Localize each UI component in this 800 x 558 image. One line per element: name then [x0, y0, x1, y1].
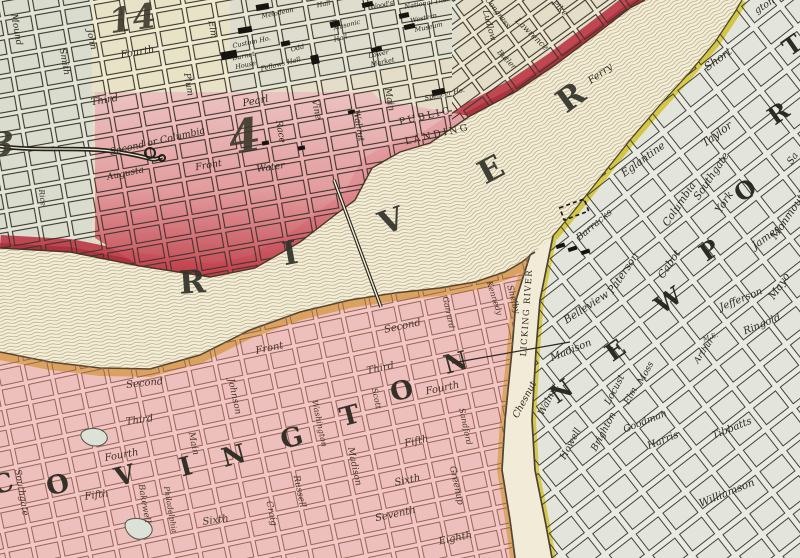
- r-label: R: [178, 262, 208, 302]
- antique-map-cincinnati-covington-newport: 1443MoundSmithJohnFourthThirdPlumElmRace…: [0, 0, 800, 558]
- 14-label: 14: [106, 0, 158, 42]
- map-canvas: 1443MoundSmithJohnFourthThirdPlumElmRace…: [0, 0, 800, 558]
- 3-label: 3: [0, 125, 14, 165]
